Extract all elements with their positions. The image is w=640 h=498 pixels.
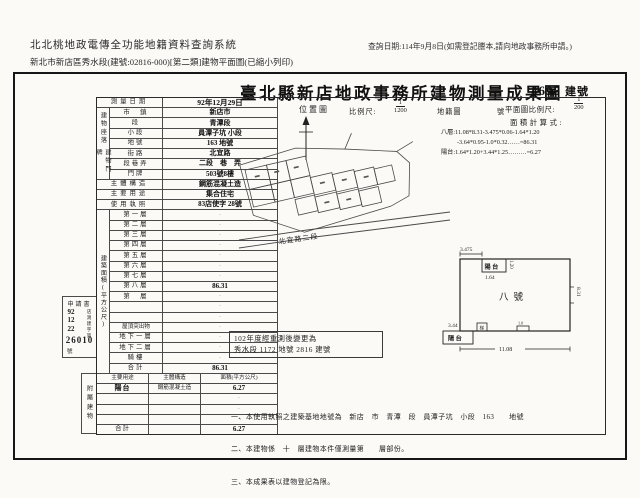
field-label: 街路 — [110, 149, 163, 158]
column-header: 面積(平方公尺) — [201, 374, 278, 383]
floor-total-row: 合計 86.31 — [97, 364, 278, 374]
field-label: 使用執照 — [97, 200, 163, 209]
group-label-site: 建物座落 — [97, 108, 110, 149]
field-label: 第四層 — [110, 241, 163, 250]
field-value: 86.31 — [163, 282, 278, 291]
field-label: 第三層 — [110, 231, 163, 240]
dim-top-left: 3.475 — [460, 247, 473, 253]
annex-use: 陽台 — [97, 384, 149, 393]
calc-line: 八層:11.08*8.31-3.475*0.06-1.64*1.20 — [441, 128, 541, 138]
building-number-value: 4695 — [531, 83, 561, 98]
field-value: 86.31 — [163, 364, 278, 373]
field-label: 門牌 — [110, 170, 163, 179]
field-label: 騎樓 — [110, 353, 163, 362]
field-label: 段 — [110, 118, 163, 127]
road-lines — [239, 212, 450, 248]
dim-right: 8.31 — [575, 287, 581, 297]
plan-scale-fraction: 1 200 — [574, 96, 584, 112]
field-label: 屋頂突出物 — [110, 323, 163, 332]
group-label-annex: 附屬建物 — [81, 373, 97, 434]
resurvey-stamp-line2: 秀水段 1172 地號 2816 建號 — [234, 345, 378, 356]
application-number-suffix: 號 — [67, 347, 72, 355]
column-header: 主要用途 — [97, 374, 149, 383]
form-row: 市 鎮 新店市 — [97, 108, 278, 118]
application-date-stamp: 92 12 22 — [65, 308, 77, 333]
note-2: 二、本建物係 十 層建物本件僅測量第 層部份。 — [231, 444, 524, 455]
note-3: 三、本成果表以建物登記為限。 — [231, 477, 524, 488]
form-row: 測量日期 92年12月29日 — [97, 98, 278, 108]
note-1: 一、本使用執照之建築基地地號為 新店 市 青潭 段 員潭子坑 小段 163 地號 — [231, 412, 524, 423]
stair-label: 梯 — [480, 325, 485, 332]
field-label — [110, 313, 163, 322]
resurvey-stamp-line1: 102年度經重測後變更為 — [234, 334, 378, 345]
field-label: 段巷弄 — [110, 159, 163, 168]
field-label: 第八層 — [110, 282, 163, 291]
floor-row: 第八層 86.31 — [97, 282, 278, 292]
floor-row: · — [97, 313, 278, 323]
location-map: 北宜路二段 — [237, 120, 452, 265]
field-label: 第二層 — [110, 221, 163, 230]
dim-bottom: 11.08 — [499, 347, 512, 353]
calc-line: 陽台:1.64*1.20+3.44*1.25………=6.27 — [441, 148, 541, 158]
parcel-number-marks — [255, 151, 373, 219]
field-label: 主體構造 — [97, 180, 163, 189]
field-label: 第一層 — [110, 210, 163, 219]
field-label: 小段 — [110, 129, 163, 138]
bottom-balcony-label: 陽台 — [448, 335, 463, 343]
field-value: 92年12月29日 — [163, 98, 278, 107]
application-label: 申請書 — [63, 299, 96, 308]
cadastral-map-no-label: 號 — [497, 107, 504, 117]
plan-scale-label: 平面圖比例尺: — [505, 104, 555, 115]
area-calc-label: 面積計算式: — [510, 117, 564, 128]
field-label: 主要用途 — [97, 190, 163, 199]
dim-top-balcony-width: 1.64 — [485, 275, 495, 281]
field-label: 地下二層 — [110, 343, 163, 352]
query-date: 查詢日期:114年9月8日(如需登記謄本,請向地政事務所申請。) — [368, 41, 572, 52]
cadastral-map-label: 地籍圖 — [437, 107, 462, 117]
application-number-box: 申請書 92 12 22 店測建 字 第 26010 號 — [62, 296, 97, 358]
resurvey-stamp: 102年度經重測後變更為 秀水段 1172 地號 2816 建號 — [229, 331, 383, 358]
floor-row: 第七層 · — [97, 272, 278, 282]
location-scale-label: 比例尺: — [349, 107, 377, 117]
field-value: 新店市 — [163, 108, 278, 117]
annex-structure: 鋼筋混凝土造 — [149, 384, 201, 393]
dim-bottom-balcony-width: 3.44 — [448, 323, 458, 329]
field-value: · — [163, 272, 278, 281]
group-label-area: 建築面積(平方公尺) — [97, 210, 110, 373]
footer-notes: 一、本使用執照之建築基地地號為 新店 市 青潭 段 員潭子坑 小段 163 地號… — [231, 390, 524, 498]
column-header: 主體構造 — [149, 374, 201, 383]
field-label: 第五層 — [110, 251, 163, 260]
floor-row: · — [97, 302, 278, 312]
field-label: 第七層 — [110, 272, 163, 281]
group-label-door: 建物門牌 — [97, 149, 110, 180]
floor-row: 第 層 · — [97, 292, 278, 302]
field-value: · — [163, 302, 278, 311]
field-label: 市 鎮 — [110, 108, 163, 117]
area-calc-lines: 八層:11.08*8.31-3.475*0.06-1.64*1.20 -3.64… — [441, 128, 541, 158]
document-subtitle: 新北市新店區秀水段(建號:02816-000)[第二類]建物平面圖(已縮小列印) — [30, 56, 293, 68]
field-value: · — [163, 313, 278, 322]
field-label: 第六層 — [110, 262, 163, 271]
field-label: 第 層 — [110, 292, 163, 301]
parcel-outlines — [238, 120, 427, 243]
field-label — [110, 302, 163, 311]
dim-notch: 1.0 — [518, 321, 523, 326]
field-label: 地下一層 — [110, 333, 163, 342]
dim-top-balcony-depth: 1.20 — [508, 260, 513, 269]
system-title: 北北桃地政電傳全功能地籍資料查詢系統 — [30, 37, 237, 52]
unit-number-label: 八號 — [499, 291, 528, 303]
field-label: 合計 — [110, 364, 163, 373]
calc-line: -3.64*0.95-1.0*0.32……=86.31 — [457, 138, 541, 148]
application-number: 26010 — [63, 335, 96, 345]
small-notch-outline — [517, 326, 529, 331]
field-label: 地號 — [110, 139, 163, 148]
field-label: 測量日期 — [97, 98, 163, 107]
field-value: · — [163, 292, 278, 301]
floor-plan: 陽台 1.64 1.20 3.475 八號 8.31 陽台 3.44 梯 1.0… — [433, 243, 613, 361]
top-balcony-label: 陽台 — [485, 263, 500, 271]
field-label: 合計 — [97, 425, 149, 434]
annex-header-row: 主要用途 主體構造 面積(平方公尺) — [97, 374, 278, 384]
location-scale-fraction: 1 1200 — [394, 99, 407, 115]
page: { "header": { "system_title": "北北桃地政電傳全功… — [0, 0, 640, 480]
